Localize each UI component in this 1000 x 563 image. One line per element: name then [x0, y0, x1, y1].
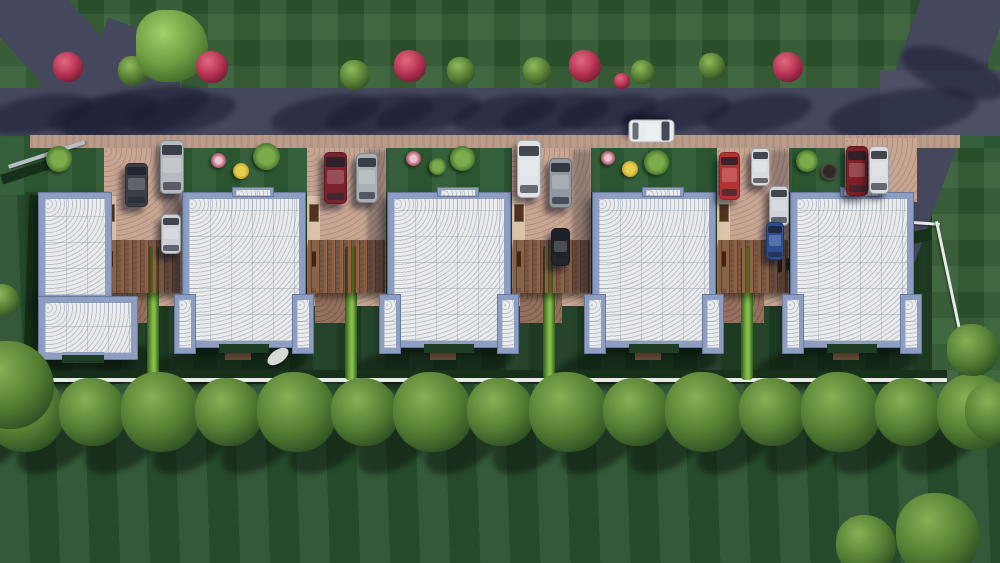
car-roof — [769, 235, 782, 246]
car-black — [551, 228, 570, 266]
roof-foot-left-fill — [787, 300, 799, 348]
rear-window — [553, 258, 567, 263]
tree-153 — [801, 372, 881, 452]
tree-154 — [875, 378, 943, 446]
tree-113 — [53, 52, 83, 82]
rear-window — [163, 182, 181, 190]
tree-144 — [195, 378, 263, 446]
roof-foot-left-fill — [589, 300, 601, 348]
tree-151 — [665, 372, 745, 452]
tree-152 — [739, 378, 807, 446]
rear-window — [632, 122, 638, 139]
windshield — [662, 122, 670, 140]
car-white-1 — [161, 214, 181, 254]
car-roof — [646, 123, 659, 140]
planter-93 — [601, 151, 615, 165]
roof-foot-left-fill — [179, 300, 191, 348]
windshield — [163, 218, 179, 225]
car-maroon — [324, 152, 347, 204]
planter-88 — [233, 163, 249, 179]
door-50 — [720, 205, 728, 221]
tree-121 — [569, 50, 601, 82]
rear-window — [327, 193, 344, 200]
car-gray — [549, 158, 572, 208]
tree-124 — [699, 53, 725, 79]
windshield — [519, 146, 538, 156]
house-4 — [592, 192, 716, 348]
house-5 — [790, 192, 914, 348]
house-1-lower — [38, 296, 138, 360]
windshield — [871, 151, 887, 160]
roof-foot-left-fill — [384, 300, 396, 348]
car-roof — [772, 200, 786, 211]
rear-window — [128, 197, 145, 203]
roof-gravel — [45, 303, 131, 353]
tree-118 — [394, 50, 426, 82]
windshield — [753, 152, 768, 159]
roof-bump-fill — [236, 190, 270, 196]
driveway-dark-33 — [520, 293, 562, 323]
car-van-silver — [160, 140, 184, 194]
tree-157 — [947, 324, 999, 376]
house-1-upper — [38, 192, 112, 302]
tree-125 — [773, 52, 803, 82]
roof-notch — [827, 341, 877, 353]
rear-window — [163, 245, 178, 251]
tree-122 — [614, 73, 630, 89]
car-roof — [359, 170, 375, 184]
aerial-site-render — [0, 0, 1000, 563]
car-silver — [356, 153, 378, 203]
tree-147 — [393, 372, 473, 452]
tree-120 — [523, 57, 551, 85]
roof-gravel — [599, 199, 709, 341]
door-48 — [515, 205, 523, 221]
car-white-2 — [751, 148, 770, 186]
windshield — [721, 157, 738, 166]
roof-foot-right-fill — [905, 300, 917, 348]
car-roof — [327, 170, 344, 185]
windshield — [551, 163, 569, 172]
roof-foot-right-fill — [707, 300, 719, 348]
planter-96 — [796, 150, 818, 172]
tree-145 — [257, 372, 337, 452]
rear-window — [359, 192, 376, 199]
roof-gravel — [189, 199, 299, 341]
windshield — [162, 145, 181, 155]
house-1-notch — [62, 352, 104, 363]
rear-window — [552, 197, 569, 204]
car-roof — [163, 158, 180, 173]
planter-92 — [450, 146, 475, 171]
house-3 — [387, 192, 511, 348]
rear-window — [768, 252, 782, 257]
roof-foot-right-fill — [297, 300, 309, 348]
car-roof — [164, 228, 178, 239]
car-darkred — [846, 146, 868, 196]
shrub-house-1 — [46, 146, 72, 172]
car-roof — [872, 162, 886, 175]
roof-bump-fill — [441, 190, 475, 196]
roof-foot-right-fill — [502, 300, 514, 348]
tree-116 — [196, 51, 228, 83]
house-2 — [182, 192, 306, 348]
car-roof — [849, 163, 865, 177]
car-suv-dark — [125, 163, 148, 207]
windshield — [553, 232, 568, 239]
tree-149 — [529, 372, 609, 452]
rear-window — [871, 183, 886, 190]
tree-119 — [447, 57, 475, 85]
roof-gravel — [45, 199, 105, 295]
tree-123 — [631, 60, 655, 84]
planter-91 — [429, 158, 446, 175]
tree-148 — [467, 378, 535, 446]
door-46 — [310, 205, 318, 221]
rear-window — [849, 185, 866, 192]
windshield — [848, 151, 866, 160]
planter-87 — [211, 153, 226, 168]
car-roof — [554, 241, 568, 252]
car-on-road — [629, 120, 675, 143]
roof-notch — [219, 341, 269, 353]
tree-117 — [340, 60, 370, 90]
windshield — [326, 157, 344, 166]
car-roof — [128, 178, 145, 190]
roof-notch — [629, 341, 679, 353]
car-van-white — [517, 140, 541, 198]
tree-143 — [121, 372, 201, 452]
roof-bump-fill — [646, 190, 680, 196]
rear-window — [722, 189, 738, 196]
planter-90 — [406, 151, 421, 166]
car-red — [719, 152, 740, 200]
planter-94 — [622, 161, 638, 177]
tree-142 — [59, 378, 127, 446]
car-roof — [722, 168, 737, 181]
car-roof — [520, 160, 537, 176]
roof-gravel — [394, 199, 504, 341]
car-roof — [552, 175, 569, 189]
car-white-3 — [869, 146, 889, 194]
garden-well — [821, 163, 838, 180]
windshield — [768, 226, 782, 233]
car-roof — [754, 161, 768, 172]
tree-146 — [331, 378, 399, 446]
windshield — [771, 190, 787, 197]
rear-window — [753, 178, 767, 183]
roof-gravel — [797, 199, 907, 341]
planter-89 — [253, 143, 280, 170]
planter-95 — [644, 150, 669, 175]
windshield — [127, 167, 145, 175]
soft-83 — [572, 150, 592, 293]
rear-window — [520, 185, 538, 193]
tree-150 — [603, 378, 671, 446]
car-blue — [766, 222, 784, 260]
car-van-white-2 — [769, 186, 789, 226]
roof-notch — [424, 341, 474, 353]
windshield — [358, 158, 376, 167]
